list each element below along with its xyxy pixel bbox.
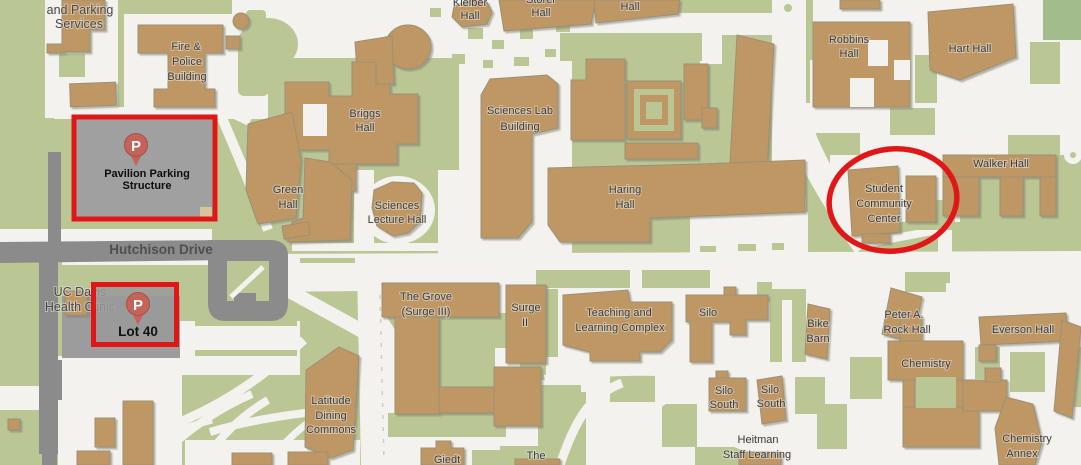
svg-text:Hall: Hall: [532, 7, 551, 19]
svg-text:Dining: Dining: [315, 410, 346, 422]
svg-text:Silo: Silo: [699, 307, 717, 319]
svg-text:Commons: Commons: [306, 424, 357, 436]
svg-text:Student: Student: [865, 183, 903, 195]
svg-text:Everson Hall: Everson Hall: [992, 324, 1054, 336]
svg-text:Green: Green: [273, 184, 304, 196]
svg-text:Walker Hall: Walker Hall: [973, 158, 1029, 170]
svg-text:Staff Learning: Staff Learning: [723, 449, 791, 461]
svg-text:(Surge III): (Surge III): [402, 306, 451, 318]
svg-text:South: South: [710, 399, 739, 411]
svg-text:Lecture Hall: Lecture Hall: [368, 214, 427, 226]
svg-text:Bike: Bike: [807, 318, 828, 330]
svg-text:P: P: [133, 297, 143, 314]
svg-text:Hall: Hall: [840, 48, 859, 60]
svg-text:Annex: Annex: [1006, 448, 1038, 460]
svg-text:Briggs: Briggs: [349, 108, 381, 120]
svg-text:Hall: Hall: [621, 1, 640, 13]
svg-text:Teaching and: Teaching and: [586, 307, 651, 319]
svg-text:Hall: Hall: [616, 199, 635, 211]
svg-text:and Parking: and Parking: [47, 3, 114, 17]
svg-text:Fire &: Fire &: [171, 41, 201, 53]
svg-text:Services: Services: [55, 17, 103, 31]
svg-text:The Grove: The Grove: [400, 291, 452, 303]
svg-text:Latitude: Latitude: [311, 395, 350, 407]
svg-text:Building: Building: [167, 71, 206, 83]
svg-text:South: South: [757, 398, 786, 410]
svg-text:II: II: [522, 317, 528, 329]
svg-text:Police: Police: [172, 56, 202, 68]
svg-text:Learning Complex: Learning Complex: [575, 322, 665, 334]
svg-text:Building: Building: [500, 121, 539, 133]
svg-text:Structure: Structure: [123, 180, 172, 192]
svg-text:Hall: Hall: [461, 10, 480, 22]
svg-text:Center: Center: [867, 213, 900, 225]
svg-text:Hutchison Drive: Hutchison Drive: [109, 242, 213, 257]
svg-text:Peter A.: Peter A.: [884, 309, 923, 321]
svg-text:Sciences: Sciences: [375, 200, 420, 212]
svg-text:Robbins: Robbins: [829, 34, 870, 46]
svg-text:P: P: [131, 138, 141, 155]
svg-text:Heitman: Heitman: [738, 434, 779, 446]
svg-text:Hart Hall: Hart Hall: [949, 43, 992, 55]
svg-text:Surge: Surge: [511, 302, 540, 314]
svg-text:Chemistry: Chemistry: [1002, 433, 1052, 445]
svg-text:Hall: Hall: [356, 122, 375, 134]
svg-text:Chemistry: Chemistry: [901, 358, 951, 370]
svg-text:Lot 40: Lot 40: [118, 324, 158, 339]
svg-text:Haring: Haring: [609, 184, 641, 196]
svg-text:Rock Hall: Rock Hall: [883, 324, 930, 336]
svg-text:Community: Community: [856, 198, 912, 210]
svg-text:Silo: Silo: [761, 384, 779, 396]
svg-text:Kleiber: Kleiber: [453, 0, 488, 9]
svg-text:Storer: Storer: [526, 0, 556, 6]
svg-text:Barn: Barn: [806, 333, 829, 345]
svg-text:The: The: [527, 450, 546, 462]
svg-text:Pavilion Parking: Pavilion Parking: [104, 168, 190, 180]
svg-text:Hall: Hall: [279, 199, 298, 211]
svg-text:Silo: Silo: [715, 385, 733, 397]
svg-text:Sciences Lab: Sciences Lab: [487, 105, 553, 117]
svg-text:Giedt: Giedt: [434, 454, 460, 465]
